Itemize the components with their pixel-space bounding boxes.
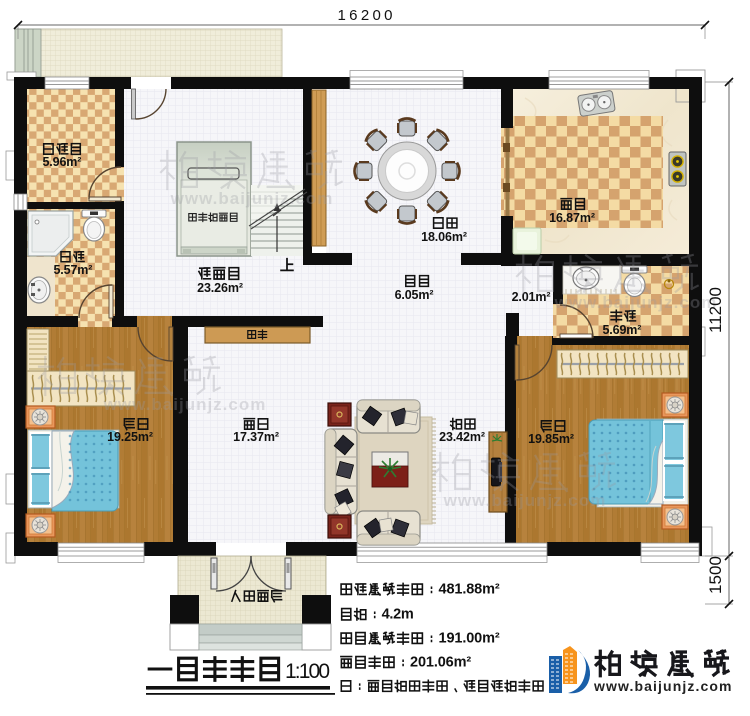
svg-text:www.baijunjz.com: www.baijunjz.com: [103, 395, 267, 414]
svg-text:23.26m²: 23.26m²: [197, 281, 243, 295]
svg-text:201.06m²: 201.06m²: [410, 655, 471, 671]
svg-text:4.2m: 4.2m: [382, 607, 414, 623]
svg-text:www.baijunjz.com: www.baijunjz.com: [170, 189, 334, 208]
svg-text:16200: 16200: [338, 7, 393, 24]
svg-text:2.01m²: 2.01m²: [512, 290, 551, 304]
svg-text:www.baijunjz.com: www.baijunjz.com: [443, 491, 607, 510]
svg-text:5.96m²: 5.96m²: [43, 155, 82, 169]
svg-text:5.57m²: 5.57m²: [54, 263, 93, 277]
svg-text:6.05m²: 6.05m²: [395, 288, 434, 302]
svg-text:www.baijunjz.com: www.baijunjz.com: [554, 293, 718, 312]
svg-text:www.baijunjz.com: www.baijunjz.com: [593, 678, 732, 694]
svg-text:16.87m²: 16.87m²: [549, 211, 595, 225]
svg-text:1500: 1500: [706, 556, 725, 594]
svg-text:1:100: 1:100: [285, 660, 330, 683]
svg-text:17.37m²: 17.37m²: [233, 430, 279, 444]
svg-text:19.25m²: 19.25m²: [107, 430, 153, 444]
svg-text:5.69m²: 5.69m²: [603, 323, 642, 337]
svg-text:481.88m²: 481.88m²: [439, 582, 500, 598]
svg-text:11200: 11200: [706, 287, 725, 333]
svg-text:19.85m²: 19.85m²: [528, 432, 574, 446]
svg-text:191.00m²: 191.00m²: [439, 631, 500, 647]
svg-text:23.42m²: 23.42m²: [439, 430, 485, 444]
svg-text:18.06m²: 18.06m²: [421, 230, 467, 244]
